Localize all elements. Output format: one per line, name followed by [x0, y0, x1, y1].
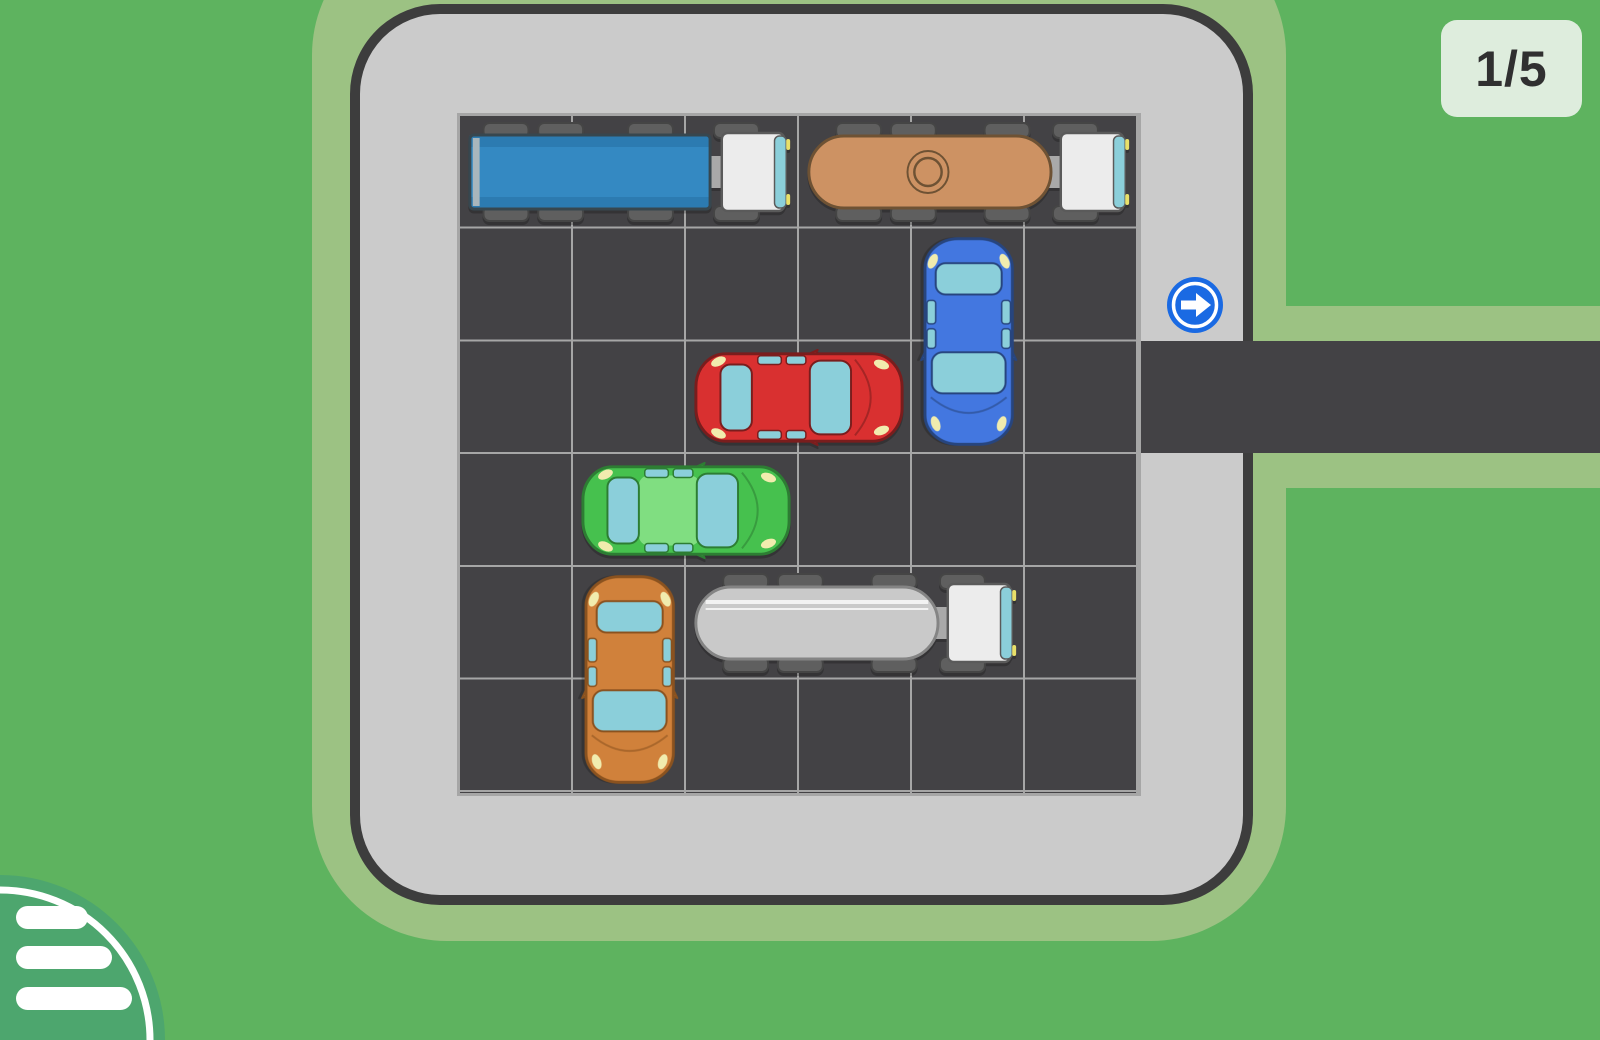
blue-semi-truck[interactable]: [464, 120, 796, 224]
red-car[interactable]: [691, 347, 907, 448]
green-car[interactable]: [578, 460, 794, 561]
white-tanker-truck-sprite: [690, 571, 1022, 675]
red-car-sprite: [691, 347, 907, 448]
level-badge: 1/5: [1441, 20, 1582, 117]
blue-car[interactable]: [918, 234, 1019, 449]
orange-car-sprite: [579, 572, 680, 787]
white-tanker-truck[interactable]: [690, 571, 1022, 675]
exit-arrow-icon: [1166, 276, 1224, 334]
green-car-sprite: [578, 460, 794, 561]
exit-road: [1138, 341, 1600, 453]
orange-car[interactable]: [579, 572, 680, 787]
blue-car-sprite: [918, 234, 1019, 449]
blue-semi-truck-sprite: [464, 120, 796, 224]
menu-button[interactable]: [0, 870, 172, 1040]
brown-tanker-truck-sprite: [803, 120, 1135, 224]
brown-tanker-truck[interactable]: [803, 120, 1135, 224]
level-counter: 1/5: [1475, 40, 1548, 98]
